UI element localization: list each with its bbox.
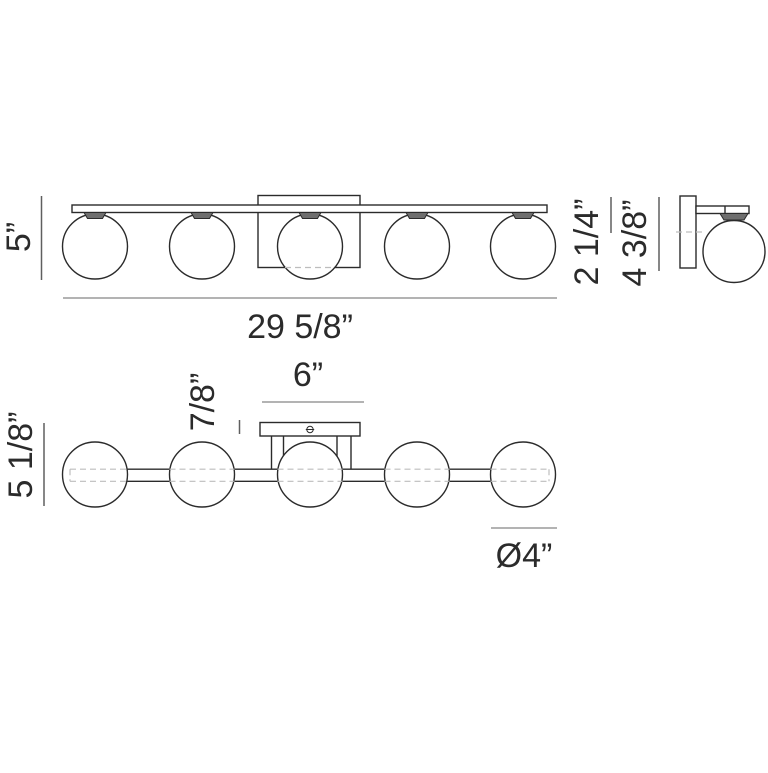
dimension-label-canopy-thickness: 7/8” [184, 373, 222, 432]
front-globe-2 [170, 214, 235, 279]
front-view [63, 196, 556, 280]
front-socket-1 [84, 213, 106, 219]
front-globe-3 [278, 214, 343, 279]
dimension-label-fixture-width: 29 5/8” [247, 308, 353, 346]
front-socket-4 [406, 213, 428, 219]
dim-backplate-height: 4 3/8” [616, 197, 659, 286]
side-socket [720, 214, 748, 221]
dimension-label-backplate-height: 4 3/8” [616, 200, 654, 287]
dimension-label-overall-depth: 5 1/8” [2, 412, 40, 499]
front-socket-3 [299, 213, 321, 219]
front-globe-4 [385, 214, 450, 279]
dimension-label-globe-diameter: Ø4” [496, 537, 553, 575]
dim-globe-diameter: Ø4” [491, 528, 557, 575]
dim-canopy-width: 6” [262, 356, 364, 402]
bottom-globe-3 [278, 442, 343, 507]
dim-fixture-height: 5” [0, 196, 42, 280]
fixture-dimension-diagram: 5” 29 5/8” 2 1/4” 4 3/8” 5 1/8” 7/8” [0, 0, 768, 768]
dim-fixture-width: 29 5/8” [63, 298, 557, 346]
bottom-view [63, 423, 556, 508]
dimension-label-canopy-width: 6” [293, 356, 323, 394]
dimension-drawing-page: 5” 29 5/8” 2 1/4” 4 3/8” 5 1/8” 7/8” [0, 0, 768, 768]
side-arm [696, 206, 749, 214]
front-socket-5 [512, 213, 534, 219]
bottom-globe-5 [491, 442, 556, 507]
dimension-label-projection: 2 1/4” [568, 199, 606, 286]
front-bar [72, 205, 547, 213]
side-view [676, 196, 765, 283]
front-socket-2 [191, 213, 213, 219]
dim-overall-depth: 5 1/8” [2, 412, 44, 506]
dimension-label-fixture-height: 5” [0, 222, 38, 252]
bottom-globe-4 [385, 442, 450, 507]
dim-projection: 2 1/4” [568, 197, 611, 285]
front-globe-1 [63, 214, 128, 279]
side-globe [703, 221, 765, 283]
dim-canopy-thickness: 7/8” [184, 373, 240, 434]
bottom-globe-2 [170, 442, 235, 507]
front-globe-5 [491, 214, 556, 279]
bottom-globe-1 [63, 442, 128, 507]
